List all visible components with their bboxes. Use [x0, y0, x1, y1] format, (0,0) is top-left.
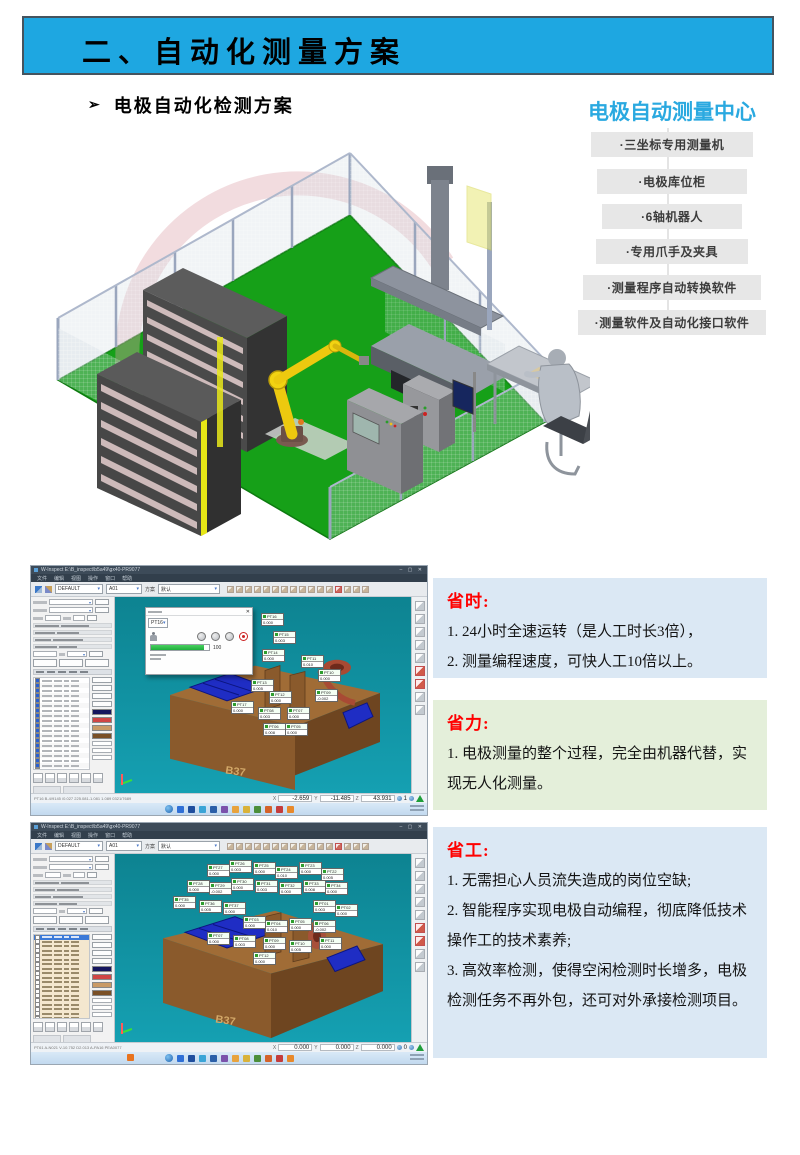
- field-label: [59, 653, 65, 656]
- status-bar: PT61 A-N021 V-10.752 D2.013 A-PA16 PEA00…: [31, 1042, 427, 1052]
- close-icon[interactable]: ✕: [246, 609, 250, 615]
- probe-count: 1: [404, 796, 407, 802]
- taskbar-icon[interactable]: [221, 1055, 228, 1062]
- cell-text: [64, 986, 69, 988]
- info-bar: [33, 623, 112, 628]
- field-label: [33, 601, 47, 604]
- action-button[interactable]: [33, 916, 57, 924]
- taskbar-icon[interactable]: [177, 1055, 184, 1062]
- action-button[interactable]: [59, 659, 83, 667]
- footer-icon[interactable]: [69, 1022, 79, 1032]
- toolbar-icon[interactable]: [362, 586, 369, 593]
- toolbar-icon-strip: [227, 843, 423, 850]
- taskbar-icon[interactable]: [188, 1055, 195, 1062]
- toolbar-icon[interactable]: [299, 843, 306, 850]
- panel-combo[interactable]: [49, 864, 93, 870]
- toolbar-icon[interactable]: [281, 843, 288, 850]
- toolbar-icon[interactable]: [272, 843, 279, 850]
- taskbar-icon[interactable]: [254, 1055, 261, 1062]
- cell-text: [64, 765, 69, 767]
- toolbar-icon[interactable]: [254, 586, 261, 593]
- field-label: [35, 889, 55, 891]
- side-field[interactable]: [92, 1012, 112, 1017]
- toolbar: DEFAULT A01 方案 默认: [31, 839, 427, 854]
- light-curtain-strip: [217, 337, 223, 447]
- cell-text: [42, 720, 52, 722]
- toolbar-icon[interactable]: [344, 843, 351, 850]
- cell-text: [71, 700, 79, 702]
- column-header: [47, 928, 55, 930]
- measure-run-dialog[interactable]: ✕ PT16 100: [145, 607, 253, 675]
- cell-text: [42, 950, 52, 952]
- cell-text: [71, 765, 79, 767]
- measure-tag: PT020.000: [335, 904, 358, 917]
- footer-icon[interactable]: [93, 773, 103, 783]
- toolbar-icon[interactable]: [263, 586, 270, 593]
- action-buttons: [33, 916, 112, 924]
- view-tool-icon[interactable]: [415, 640, 425, 650]
- view-tool-icon[interactable]: [415, 627, 425, 637]
- menu-item[interactable]: 视图: [71, 575, 81, 582]
- menu-item[interactable]: 操作: [88, 832, 98, 839]
- window-title: W-Inspect E:\B_inspect\b5a49\gx40-PR9077: [41, 824, 397, 830]
- toolbar-icon[interactable]: [272, 586, 279, 593]
- cell-text: [71, 710, 79, 712]
- side-field[interactable]: [92, 748, 112, 753]
- taskbar-icon[interactable]: [254, 806, 261, 813]
- toolbar-icon[interactable]: [290, 843, 297, 850]
- toolbar-icon[interactable]: [227, 843, 234, 850]
- panel-field[interactable]: [73, 872, 85, 878]
- window-controls[interactable]: – ▢ ✕: [400, 824, 424, 830]
- benefit-line: 2. 智能程序实现电极自动编程，彻底降低技术操作工的技术素养;: [447, 896, 753, 956]
- measure-tag: PT300.000: [231, 878, 254, 891]
- footer-icon[interactable]: [81, 773, 91, 783]
- field-label: [59, 646, 77, 648]
- view-tool-icon[interactable]: [415, 871, 425, 881]
- toolbar: DEFAULT A01 方案 默认: [31, 582, 427, 597]
- panel-tab[interactable]: [63, 1035, 91, 1042]
- search-field[interactable]: [33, 908, 57, 914]
- cell-text: [71, 705, 79, 707]
- toolbar-icon[interactable]: [263, 843, 270, 850]
- operator-mode-icon[interactable]: [150, 632, 157, 641]
- cell-text: [42, 735, 52, 737]
- cell-text: [54, 700, 62, 702]
- view-tool-icon[interactable]: [415, 653, 425, 663]
- footer-icon[interactable]: [57, 1022, 67, 1032]
- view-tool-icon[interactable]: [415, 884, 425, 894]
- tag-value: -0.002: [316, 696, 337, 701]
- side-button[interactable]: [92, 942, 112, 948]
- part-label: B37: [225, 765, 247, 780]
- cell-text: [64, 690, 69, 692]
- search-button[interactable]: [89, 908, 103, 914]
- table-area: [33, 934, 112, 1019]
- menu-item[interactable]: 窗口: [105, 575, 115, 582]
- field-label: [33, 858, 47, 861]
- feature-box: ·6轴机器人: [602, 204, 742, 229]
- measure-tag: PT260.003: [229, 860, 252, 873]
- program-combo[interactable]: 默认: [158, 584, 220, 594]
- cell-text: [64, 755, 69, 757]
- view-tool-icon[interactable]: [415, 923, 425, 933]
- probe-icon[interactable]: [35, 843, 42, 850]
- side-field[interactable]: [92, 1005, 112, 1010]
- cell-text: [42, 954, 52, 956]
- panel-small-button[interactable]: [95, 856, 109, 862]
- light-curtain-strip: [201, 419, 207, 536]
- globe-icon[interactable]: [397, 796, 402, 801]
- info-bar: [33, 894, 112, 899]
- cell-text: [42, 981, 52, 983]
- toolbar-icon[interactable]: [245, 843, 252, 850]
- taskbar-icon[interactable]: [199, 1055, 206, 1062]
- menu-item[interactable]: 帮助: [122, 832, 132, 839]
- probe-combo[interactable]: A01: [106, 841, 142, 851]
- measure-tag: PT070.000: [207, 932, 230, 945]
- cell-text: [64, 715, 69, 717]
- probe-count: 0: [404, 1045, 407, 1051]
- view-tool-icon[interactable]: [415, 666, 425, 676]
- tag-value: 0.000: [320, 944, 341, 949]
- taskbar-icon[interactable]: [276, 1055, 283, 1062]
- toolbar-icon[interactable]: [335, 843, 342, 850]
- measure-tag: PT340.000: [325, 882, 348, 895]
- toolbar-icon[interactable]: [326, 843, 333, 850]
- panel-footer-icons: [33, 1021, 112, 1033]
- cell-text: [71, 755, 79, 757]
- search-row: [33, 651, 112, 657]
- cell-text: [71, 1017, 79, 1019]
- dialog-title-bar[interactable]: ✕: [146, 608, 252, 616]
- view-tool-icon[interactable]: [415, 601, 425, 611]
- result-table: [33, 677, 90, 770]
- windows-taskbar[interactable]: [31, 1052, 427, 1064]
- measure-tag: PT280.000: [187, 880, 210, 893]
- cell-text: [54, 740, 62, 742]
- side-button[interactable]: [92, 950, 112, 956]
- panel-combo[interactable]: [49, 599, 93, 605]
- yellow-panel: [467, 186, 491, 250]
- combo-row: [33, 607, 112, 613]
- tag-value: 0.000: [300, 869, 321, 874]
- slide-title: 二、自动化测量方案: [82, 29, 406, 71]
- action-button[interactable]: [85, 916, 109, 924]
- measure-tag: PT140.000: [262, 649, 285, 662]
- window-title-bar[interactable]: W-Inspect E:\B_inspect\b5a49\gx40-PR9077…: [31, 823, 427, 831]
- start-button-icon[interactable]: [165, 805, 173, 813]
- toolbar-icon[interactable]: [317, 586, 324, 593]
- action-button[interactable]: [33, 659, 57, 667]
- search-field[interactable]: [33, 651, 57, 657]
- globe-icon[interactable]: [397, 1045, 402, 1050]
- view-tool-icon[interactable]: [415, 949, 425, 959]
- search-button[interactable]: [89, 651, 103, 657]
- footer-icon[interactable]: [45, 1022, 55, 1032]
- menu-item[interactable]: 视图: [71, 832, 81, 839]
- tag-value: 0.000: [232, 885, 253, 890]
- toolbar-icon[interactable]: [299, 586, 306, 593]
- measure-tag: PT040.010: [265, 920, 288, 933]
- dialog-point-combo[interactable]: PT16: [148, 618, 168, 628]
- panel-small-button[interactable]: [95, 607, 109, 613]
- taskbar-icon[interactable]: [221, 806, 228, 813]
- footer-icon[interactable]: [45, 773, 55, 783]
- cell-text: [64, 954, 69, 956]
- combo-row: [33, 599, 112, 605]
- search-row: [33, 908, 112, 914]
- view-tool-icon[interactable]: [415, 910, 425, 920]
- taskbar-icon[interactable]: [243, 1055, 250, 1062]
- globe-icon[interactable]: [409, 796, 414, 801]
- toolbar-icon[interactable]: [236, 586, 243, 593]
- cell-text: [54, 959, 62, 961]
- menu-item[interactable]: 窗口: [105, 832, 115, 839]
- progress-value: 100: [213, 645, 221, 651]
- cell-text: [54, 765, 62, 767]
- menu-item[interactable]: 文件: [37, 575, 47, 582]
- side-field[interactable]: [92, 755, 112, 760]
- toolbar-icon[interactable]: [317, 843, 324, 850]
- field-label: [35, 882, 59, 884]
- toolbar-icon[interactable]: [344, 586, 351, 593]
- step-button[interactable]: [225, 632, 234, 641]
- toolbar-icon[interactable]: [281, 586, 288, 593]
- view-toolbar: [411, 597, 427, 793]
- view-tool-icon[interactable]: [415, 936, 425, 946]
- tag-value: 0.000: [188, 887, 209, 892]
- tag-value: 0.000: [290, 925, 311, 930]
- toolbar-icon[interactable]: [290, 586, 297, 593]
- footer-icon[interactable]: [33, 1022, 43, 1032]
- panel-tab[interactable]: [63, 786, 91, 793]
- cell-text: [54, 941, 62, 943]
- toolbar-icon[interactable]: [335, 586, 342, 593]
- alert-icon[interactable]: [416, 1044, 424, 1051]
- toolbar-icon[interactable]: [227, 586, 234, 593]
- panel-small-button[interactable]: [95, 599, 109, 605]
- view-tool-icon[interactable]: [415, 962, 425, 972]
- taskbar-icon[interactable]: [177, 806, 184, 813]
- cell-text: [42, 740, 52, 742]
- notification-icon[interactable]: [127, 1054, 134, 1061]
- measure-tag: PT150.003: [273, 631, 296, 644]
- tag-value: 0.010: [276, 873, 297, 878]
- z-label: Z: [356, 796, 359, 802]
- cell-text: [71, 963, 79, 965]
- taskbar-icon[interactable]: [210, 1055, 217, 1062]
- tag-value: 0.005: [290, 947, 311, 952]
- toolbar-icon[interactable]: [326, 586, 333, 593]
- footer-icon[interactable]: [57, 773, 67, 783]
- cell-text: [64, 725, 69, 727]
- footer-icon[interactable]: [33, 773, 43, 783]
- side-button[interactable]: [92, 934, 112, 940]
- left-panel: [31, 597, 115, 793]
- toolbar-icon[interactable]: [308, 843, 315, 850]
- taskbar-icon[interactable]: [210, 806, 217, 813]
- side-button[interactable]: [92, 693, 112, 699]
- action-button[interactable]: [59, 916, 83, 924]
- toolbar-icon[interactable]: [362, 843, 369, 850]
- robot-cell-rendering: [35, 122, 590, 557]
- section-subtitle: ➢ 电极自动化检测方案: [88, 92, 294, 118]
- coordsys-combo[interactable]: DEFAULT: [55, 584, 103, 594]
- panel-field[interactable]: [73, 615, 85, 621]
- coordsys-combo[interactable]: DEFAULT: [55, 841, 103, 851]
- field-label: [33, 866, 47, 869]
- globe-icon[interactable]: [409, 1045, 414, 1050]
- result-row[interactable]: [34, 768, 89, 770]
- view-tool-icon[interactable]: [415, 692, 425, 702]
- probe-combo[interactable]: A01: [106, 584, 142, 594]
- measure-tag: PT120.000: [269, 691, 292, 704]
- side-button[interactable]: [92, 701, 112, 707]
- side-field[interactable]: [92, 998, 112, 1003]
- toolbar-icon[interactable]: [353, 843, 360, 850]
- toolbar-label: 方案: [145, 843, 155, 850]
- panel-small-button[interactable]: [87, 872, 97, 878]
- axis-triad-icon: [121, 1020, 135, 1034]
- benefit-block-staff: 省工: 1. 无需担心人员流失造成的岗位空缺; 2. 智能程序实现电极自动编程，…: [433, 827, 767, 1058]
- panel-combo[interactable]: [49, 856, 93, 862]
- taskbar-icon[interactable]: [287, 1055, 294, 1062]
- tag-value: 0.000: [254, 869, 275, 874]
- benefit-title: 省工:: [447, 836, 753, 861]
- measure-tag: PT270.000: [207, 864, 230, 877]
- program-combo[interactable]: 默认: [158, 841, 220, 851]
- row-checkbox[interactable]: [35, 1016, 40, 1019]
- taskbar-icon[interactable]: [232, 1055, 239, 1062]
- cell-text: [54, 986, 62, 988]
- toolbar-icon[interactable]: [254, 843, 261, 850]
- panel-tab[interactable]: [33, 1035, 61, 1042]
- row-icon[interactable]: [35, 768, 40, 770]
- alert-icon[interactable]: [416, 795, 424, 802]
- play-button[interactable]: [197, 632, 206, 641]
- cell-text: [64, 936, 69, 938]
- window-controls[interactable]: – ▢ ✕: [400, 567, 424, 573]
- cell-text: [42, 710, 52, 712]
- taskbar-icon[interactable]: [199, 806, 206, 813]
- x-value: -2.659: [278, 795, 312, 802]
- cell-text: [71, 972, 79, 974]
- cell-text: [71, 981, 79, 983]
- viewport-3d[interactable]: B37 PT160.000PT150.003PT140.000PT110.010…: [115, 597, 411, 793]
- view-tool-icon[interactable]: [415, 705, 425, 715]
- taskbar-icon[interactable]: [287, 806, 294, 813]
- panel-small-button[interactable]: [87, 615, 97, 621]
- cell-text: [42, 700, 52, 702]
- toolbar-icon[interactable]: [245, 586, 252, 593]
- taskbar-icon[interactable]: [188, 806, 195, 813]
- taskbar-icon[interactable]: [276, 806, 283, 813]
- search-combo[interactable]: [67, 908, 87, 914]
- measure-tag: PT06-0.002: [313, 920, 336, 933]
- alignment-icon[interactable]: [45, 586, 52, 593]
- cell-text: [64, 990, 69, 992]
- alignment-icon[interactable]: [45, 843, 52, 850]
- panel-combo[interactable]: [49, 607, 93, 613]
- pause-button[interactable]: [211, 632, 220, 641]
- footer-icon[interactable]: [69, 773, 79, 783]
- toolbar-icon[interactable]: [353, 586, 360, 593]
- start-button-icon[interactable]: [165, 1054, 173, 1062]
- taskbar-icon[interactable]: [243, 806, 250, 813]
- benefit-block-labor: 省力: 1. 电极测量的整个过程，完全由机器代替，实现无人化测量。: [433, 700, 767, 810]
- menu-item[interactable]: 编辑: [54, 832, 64, 839]
- footer-icon[interactable]: [93, 1022, 103, 1032]
- cell-text: [42, 695, 52, 697]
- panel-tab[interactable]: [33, 786, 61, 793]
- taskbar-icon[interactable]: [232, 806, 239, 813]
- probe-icon[interactable]: [35, 586, 42, 593]
- view-tool-icon[interactable]: [415, 897, 425, 907]
- measure-tag: PT110.010: [301, 655, 324, 668]
- panel-field[interactable]: [45, 872, 61, 878]
- cell-text: [54, 715, 62, 717]
- taskbar-icon[interactable]: [265, 806, 272, 813]
- viewport-3d[interactable]: B37 PT270.000PT260.003PT250.000PT240.010…: [115, 854, 411, 1042]
- side-field[interactable]: [92, 741, 112, 746]
- cell-text: [54, 680, 62, 682]
- action-button[interactable]: [85, 659, 109, 667]
- side-button[interactable]: [92, 677, 112, 683]
- combo-row: [33, 856, 112, 862]
- cell-text: [71, 685, 79, 687]
- cell-text: [71, 995, 79, 997]
- status-info: PT61 A-N021 V-10.752 D2.013 A-PA16 PEA00…: [34, 1045, 271, 1050]
- tag-value: 0.000: [254, 959, 275, 964]
- side-button[interactable]: [92, 685, 112, 691]
- measure-tag: PT120.000: [253, 952, 276, 965]
- measure-tag: PT360.005: [199, 900, 222, 913]
- view-tool-icon[interactable]: [415, 858, 425, 868]
- toolbar-icon[interactable]: [236, 843, 243, 850]
- search-combo[interactable]: [67, 651, 87, 657]
- cell-text: [42, 986, 52, 988]
- record-button[interactable]: [239, 632, 248, 641]
- panel-small-button[interactable]: [95, 864, 109, 870]
- cell-text: [54, 725, 62, 727]
- arrow-bullet-icon: ➢: [88, 97, 100, 114]
- measure-tag: PT170.000: [231, 701, 254, 714]
- menu-item[interactable]: 文件: [37, 832, 47, 839]
- menu-item[interactable]: 帮助: [122, 575, 132, 582]
- cell-text: [71, 720, 79, 722]
- info-bar: [33, 644, 112, 649]
- footer-icon[interactable]: [81, 1022, 91, 1032]
- window-title-bar[interactable]: W-Inspect E:\B_inspect\b5a49\gx40-PR9077…: [31, 566, 427, 574]
- cell-text: [71, 770, 79, 771]
- taskbar-icon[interactable]: [265, 1055, 272, 1062]
- menu-item[interactable]: 操作: [88, 575, 98, 582]
- tag-value: 0.000: [319, 676, 340, 681]
- side-button[interactable]: [92, 958, 112, 964]
- view-tool-icon[interactable]: [415, 679, 425, 689]
- menu-item[interactable]: 编辑: [54, 575, 64, 582]
- cell-text: [42, 959, 52, 961]
- tag-value: 0.000: [263, 656, 284, 661]
- toolbar-icon[interactable]: [308, 586, 315, 593]
- cell-text: [64, 745, 69, 747]
- cell-text: [54, 1008, 62, 1010]
- panel-field[interactable]: [45, 615, 61, 621]
- view-tool-icon[interactable]: [415, 614, 425, 624]
- result-row[interactable]: [34, 1016, 89, 1019]
- windows-taskbar[interactable]: [31, 803, 427, 815]
